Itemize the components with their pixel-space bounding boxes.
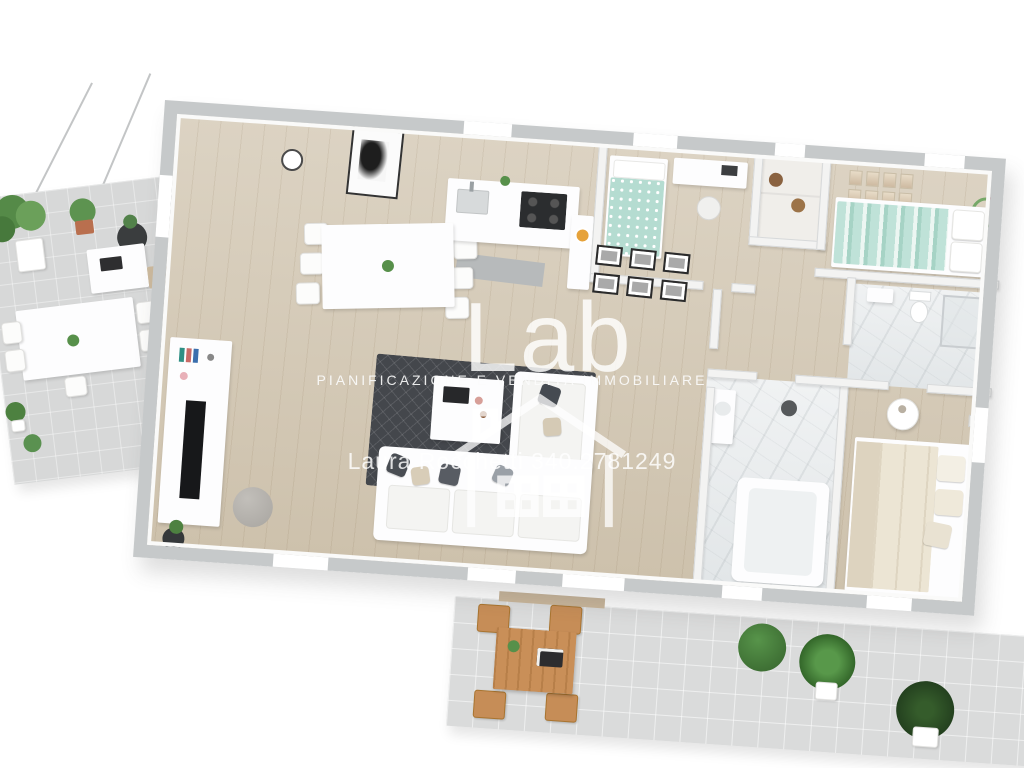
- patio-table: [493, 627, 577, 694]
- bathtub: [731, 477, 830, 587]
- dining-chair: [300, 252, 324, 274]
- photo-frame: [849, 170, 863, 186]
- table-tray: [443, 386, 470, 404]
- gallery-frame: [626, 276, 654, 299]
- bed-pillow: [951, 209, 985, 241]
- bed-pillow: [936, 455, 966, 483]
- patio: [446, 596, 1024, 767]
- shade-wire: [33, 83, 93, 198]
- kids-duvet: [605, 177, 664, 257]
- decor-item: [180, 372, 189, 381]
- gallery-frame: [663, 252, 691, 275]
- cooktop: [519, 191, 567, 230]
- apartment: [133, 100, 1006, 616]
- table-decor: [898, 405, 907, 414]
- seat-cushion: [451, 489, 516, 537]
- tv-wall-unit: [158, 337, 233, 527]
- faucet: [469, 181, 474, 191]
- bathtub-basin: [744, 488, 818, 577]
- bed-pillow: [949, 241, 983, 273]
- gallery-frame: [592, 272, 620, 295]
- plant-pot: [815, 681, 838, 700]
- wreath-berry: [989, 197, 995, 203]
- kitchen-sink: [456, 189, 490, 215]
- coffee-table: [430, 375, 504, 444]
- decor-item: [207, 354, 214, 361]
- floor-plan-render: Lab PIANIFICAZIONE E VENDITA IMMOBILIARE…: [0, 0, 1024, 768]
- desk-monitor: [721, 165, 738, 176]
- photo-frame: [900, 173, 914, 189]
- bed-pillow: [934, 489, 964, 517]
- window-opening: [866, 595, 912, 611]
- book-stack: [179, 348, 185, 362]
- patio-chair: [545, 693, 579, 723]
- terrace-chair: [64, 375, 88, 398]
- small-plant: [22, 433, 42, 453]
- terrace-chair: [4, 349, 27, 373]
- pillow: [543, 417, 562, 436]
- plant-pot: [912, 726, 939, 748]
- dining-table: [321, 223, 454, 309]
- terrace-chair: [1, 321, 24, 345]
- book-stack: [186, 348, 192, 362]
- artwork-print: [357, 139, 389, 182]
- gallery-wall: [590, 245, 706, 322]
- book: [99, 256, 122, 272]
- interior-wall: [731, 283, 756, 294]
- decor-item: [480, 411, 487, 418]
- pillow: [438, 463, 462, 487]
- patio-chair: [473, 690, 507, 720]
- dish-tray: [536, 648, 563, 668]
- table-plant: [382, 260, 394, 272]
- tv-screen: [179, 400, 206, 499]
- decor-item: [475, 396, 484, 405]
- gallery-frame: [629, 248, 657, 271]
- gallery-frame: [660, 280, 688, 303]
- shower: [940, 295, 988, 350]
- terracotta-pot: [75, 219, 95, 235]
- window-opening: [722, 585, 763, 601]
- kitchen-island: [444, 178, 580, 249]
- photo-frame: [883, 172, 897, 188]
- pillow: [410, 466, 430, 486]
- window-opening: [775, 143, 806, 158]
- window-opening: [273, 554, 329, 571]
- wall-artwork: [346, 126, 405, 199]
- window-opening: [467, 567, 516, 583]
- gallery-frame: [595, 245, 623, 268]
- photo-frame: [866, 171, 880, 187]
- window-opening: [972, 407, 989, 463]
- plant-pot: [15, 237, 47, 272]
- patio-bush: [737, 622, 788, 673]
- bed-pillow: [922, 521, 952, 550]
- island-plant: [500, 176, 511, 187]
- bathroom-sink: [867, 287, 894, 303]
- dining-chair: [296, 282, 320, 304]
- double-bed-duvet: [833, 201, 949, 271]
- seat-cushion: [517, 494, 582, 542]
- window-opening: [924, 153, 965, 169]
- plant-pot: [11, 419, 26, 433]
- book-stack: [193, 349, 199, 363]
- seat-cushion: [386, 485, 451, 533]
